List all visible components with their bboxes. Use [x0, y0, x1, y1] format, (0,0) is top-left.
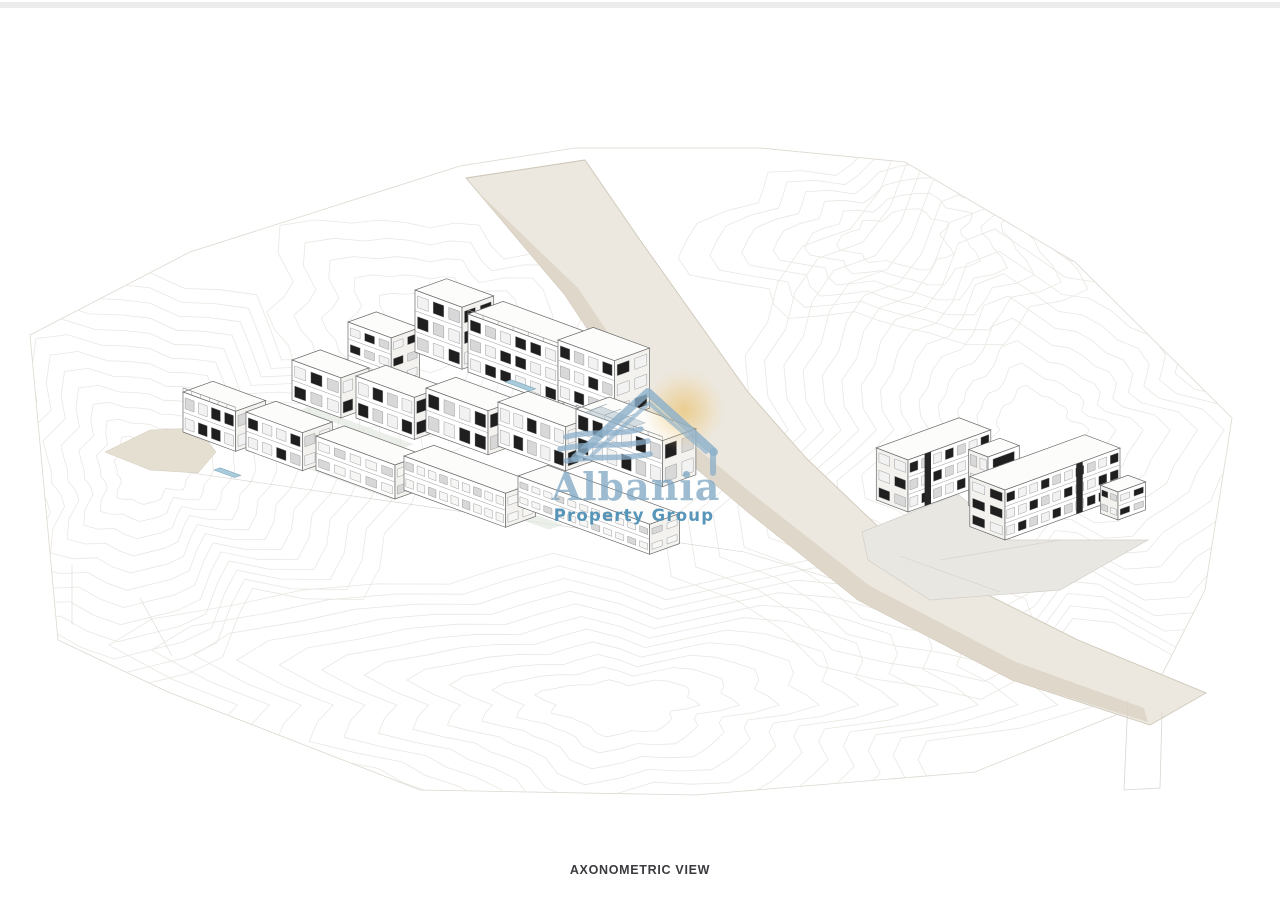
watermark-brand: Albania: [551, 464, 721, 509]
axonometric-drawing: Albania Property Group: [0, 0, 1280, 913]
view-caption: AXONOMETRIC VIEW: [0, 863, 1280, 877]
watermark-tagline: Property Group: [554, 506, 714, 525]
l-shaped-building: [862, 418, 1148, 600]
drawing-page: Albania Property Group AXONOMETRIC VIEW: [0, 0, 1280, 913]
